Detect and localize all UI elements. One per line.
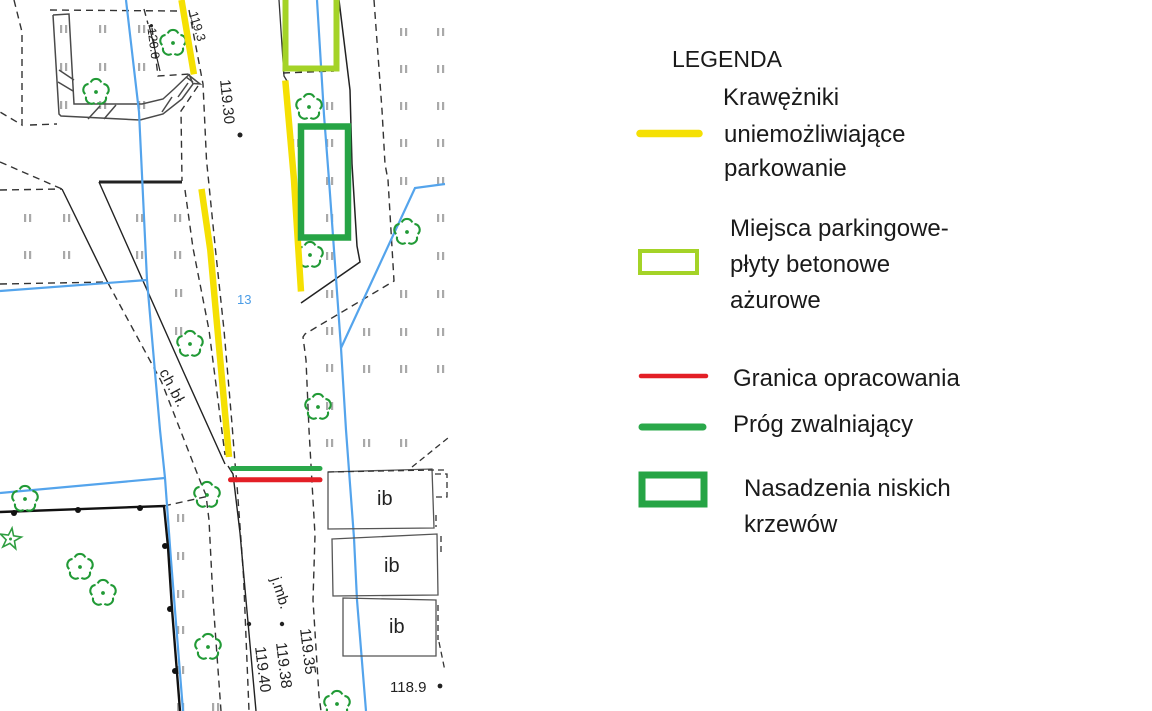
svg-text:uniemożliwiające: uniemożliwiające bbox=[724, 121, 905, 148]
svg-text:Nasadzenia niskich: Nasadzenia niskich bbox=[744, 475, 951, 502]
svg-text:krzewów: krzewów bbox=[744, 511, 838, 538]
svg-text:13: 13 bbox=[237, 292, 251, 307]
svg-text:118.9: 118.9 bbox=[390, 679, 426, 696]
svg-text:ib: ib bbox=[389, 616, 405, 638]
svg-text:płyty betonowe: płyty betonowe bbox=[730, 251, 890, 278]
svg-text:parkowanie: parkowanie bbox=[724, 155, 847, 182]
svg-text:ib: ib bbox=[384, 555, 400, 577]
svg-text:Krawężniki: Krawężniki bbox=[723, 84, 839, 111]
svg-text:Miejsca parkingowe-: Miejsca parkingowe- bbox=[730, 215, 949, 242]
svg-text:ib: ib bbox=[377, 488, 393, 510]
svg-text:Granica opracowania: Granica opracowania bbox=[733, 365, 960, 392]
svg-text:LEGENDA: LEGENDA bbox=[672, 46, 783, 72]
svg-text:ażurowe: ażurowe bbox=[730, 287, 821, 314]
svg-text:Próg zwalniający: Próg zwalniający bbox=[733, 411, 913, 438]
